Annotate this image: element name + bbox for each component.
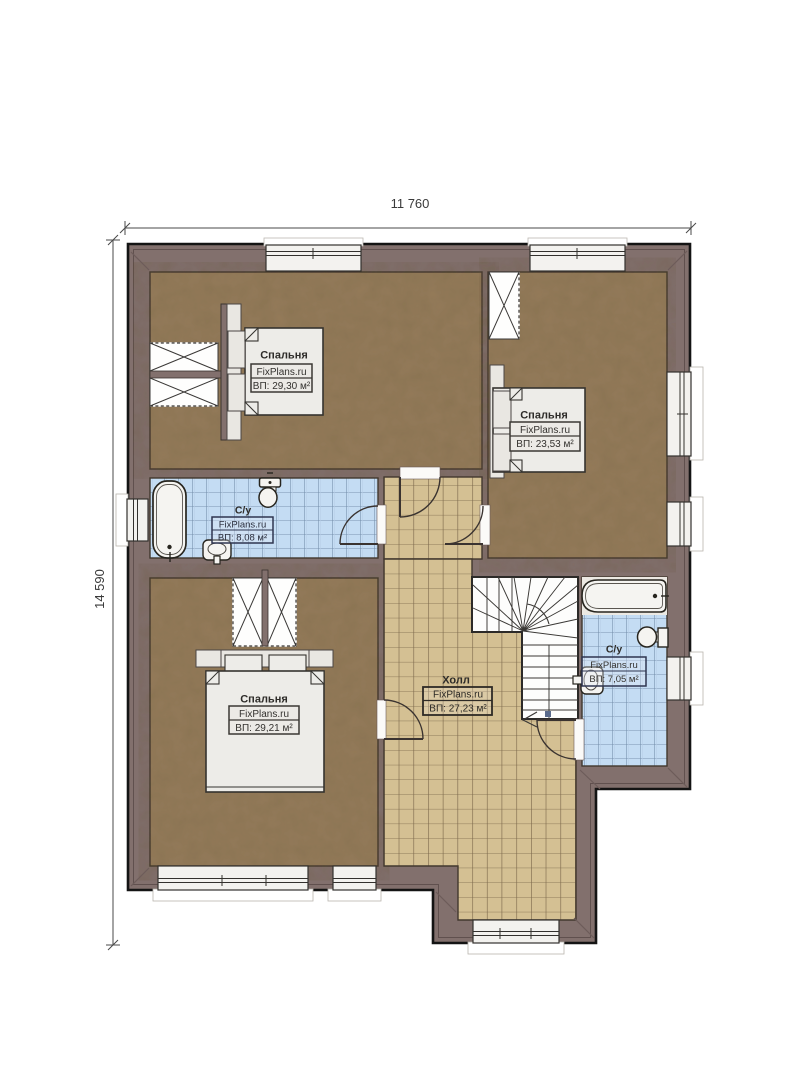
svg-text:14 590: 14 590: [92, 569, 107, 609]
svg-text:Спальня: Спальня: [260, 350, 308, 362]
svg-text:ВП: 29,21 м²: ВП: 29,21 м²: [235, 723, 293, 734]
svg-text:Спальня: Спальня: [520, 410, 568, 422]
svg-text:FixPlans.ru: FixPlans.ru: [590, 660, 638, 671]
svg-text:С/у: С/у: [235, 505, 252, 517]
svg-text:FixPlans.ru: FixPlans.ru: [239, 709, 289, 720]
svg-text:ВП: 7,05 м²: ВП: 7,05 м²: [589, 674, 638, 685]
svg-text:С/у: С/у: [606, 644, 623, 656]
svg-text:ВП: 27,23 м²: ВП: 27,23 м²: [429, 704, 487, 715]
svg-text:FixPlans.ru: FixPlans.ru: [433, 690, 483, 701]
svg-text:FixPlans.ru: FixPlans.ru: [219, 520, 267, 531]
svg-text:Холл: Холл: [442, 675, 470, 687]
svg-text:ВП: 8,08 м²: ВП: 8,08 м²: [218, 533, 267, 544]
svg-text:ВП: 29,30 м²: ВП: 29,30 м²: [253, 381, 311, 392]
svg-text:FixPlans.ru: FixPlans.ru: [256, 367, 306, 378]
svg-text:11 760: 11 760: [391, 196, 430, 211]
svg-text:ВП: 23,53 м²: ВП: 23,53 м²: [516, 439, 574, 450]
svg-text:Спальня: Спальня: [240, 694, 288, 706]
svg-text:FixPlans.ru: FixPlans.ru: [520, 425, 570, 436]
